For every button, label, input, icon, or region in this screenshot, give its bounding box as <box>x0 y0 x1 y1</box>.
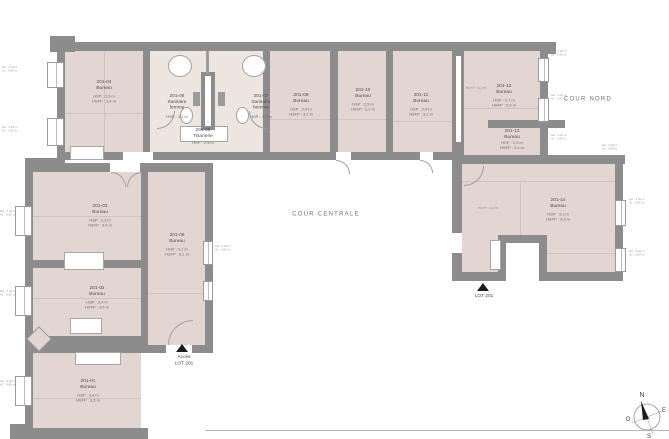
access-label: Accès LOT 201 <box>175 355 194 367</box>
window-dim-tag: HA : 2,20 mAL : 0,95 m <box>215 245 231 252</box>
room-hsfp: HSFP : 3,3 m <box>546 218 570 223</box>
compass: N E S O <box>614 388 669 439</box>
window-dim-tag: HA : 2,20 mAL : 0,95 m <box>629 250 645 257</box>
room-label-201-13: 201-13 Bureau HSP : 2,2 m HSFP : 2,4 m <box>500 129 524 151</box>
wall-segment <box>143 51 150 152</box>
window-dim-tag: HA : 2,20 mAL : 0,95 m <box>551 50 567 57</box>
grid-line <box>148 293 205 294</box>
room-label-201-02: 201-02 Bureau HSP : 3,4 m HSFP : 3,5 m <box>85 286 109 310</box>
window <box>203 241 213 265</box>
fixture-block <box>218 92 225 106</box>
grid-line <box>393 121 452 122</box>
window <box>15 286 32 316</box>
room-hsfp: HSFP : 2,9 m <box>492 104 516 109</box>
room-hsfp: HSFP : 3,1 m <box>351 108 375 113</box>
window <box>15 206 32 236</box>
chimney-box <box>64 252 104 270</box>
room-type: Bureau <box>165 239 189 245</box>
window-dim-tag: HA : 2,20 mAL : 0,95 m <box>551 134 567 141</box>
chimney-box <box>70 146 104 160</box>
room-label-201-09: 201-09 Bureau HSP : 2,9 m HSFP : 3,1 m <box>289 93 313 117</box>
room-type2: femme <box>166 106 188 112</box>
room-hsfp: HSFP : 3,4 m <box>88 224 112 229</box>
window <box>615 248 626 272</box>
room-hsp: HSP : 2,5 m <box>192 141 214 146</box>
door-opening <box>123 152 153 160</box>
room-type: Bureau <box>351 94 375 100</box>
door-opening <box>456 56 461 142</box>
room-hsp: HSP : 3,3 m <box>166 114 188 119</box>
chimney-box <box>75 352 121 365</box>
door-arc <box>336 160 350 174</box>
window-dim-tag: HA : 2,20 mAL : 0,95 m <box>602 144 618 151</box>
room-hsfp: HSFP : 3,4 m <box>92 100 116 105</box>
room-label-201-07: 201-07 Sanitaire homme HSP : 3,3 m <box>250 94 272 119</box>
ground-line <box>205 430 669 431</box>
partition-wall <box>206 51 209 74</box>
room-type: Bureau <box>500 135 524 141</box>
courtyard-notch <box>506 243 539 281</box>
grid-line <box>270 119 330 120</box>
compass-n: N <box>639 392 644 399</box>
room-label-201-12: 201-12 Bureau HSP : 2,7 m HSFP : 2,9 m <box>492 84 516 108</box>
door-arc <box>420 160 433 173</box>
wall-segment <box>141 172 148 348</box>
duct-shaft-slit <box>205 76 211 126</box>
cour-nord-label: COUR NORD <box>564 96 612 102</box>
room-type: Bureau <box>409 99 433 105</box>
grid-line <box>520 181 521 237</box>
window <box>203 281 213 301</box>
room-type: Bureau <box>85 292 109 298</box>
room-hsfp: HSFP : 3,5 m <box>76 399 100 404</box>
room-hsfp: HSFP : 3,1 m <box>409 113 433 118</box>
wall-segment <box>57 42 556 51</box>
door-opening <box>336 152 351 160</box>
room-label-201-01: 201-01 Bureau HSP : 3,4 m HSFP : 3,5 m <box>76 379 100 403</box>
lot-label: LOT 201 <box>475 294 494 300</box>
fixture-block <box>193 92 200 106</box>
room-label-201-03: 201-03 Bureau HSP : 3,3 m HSFP : 3,4 m <box>88 204 112 228</box>
room-fill-201-05 <box>148 172 205 345</box>
cour-centrale-label: COUR CENTRALE <box>292 211 359 217</box>
height-note: HSFP : 3,1 m <box>478 207 498 210</box>
window <box>47 118 64 146</box>
room-type: Bureau <box>92 86 116 92</box>
window-dim-tag: HA : 2,20 mAL : 0,95 m <box>2 66 18 73</box>
compass-o: O <box>626 417 631 423</box>
wall-segment <box>25 428 148 439</box>
wall-segment <box>63 152 455 160</box>
room-hsfp: HSFP : 3,1 m <box>289 113 313 118</box>
room-label-201-06: 201-06 Sanitaire femme HSP : 3,3 m <box>166 94 188 119</box>
wc-fixture <box>168 55 192 77</box>
sink-fixture <box>236 107 249 124</box>
room-hsfp: HSFP : 3,5 m <box>85 306 109 311</box>
wall-segment <box>330 51 338 152</box>
room-label-201-04: 201-04 Bureau HSP : 3,3 m HSFP : 3,4 m <box>92 80 116 104</box>
window-dim-tag: HA : 2,20 mAL : 0,95 m <box>0 210 16 217</box>
room-type: Bureau <box>546 204 570 210</box>
wall-segment <box>386 51 393 152</box>
height-note: HSFP : 3,1 m <box>466 87 486 90</box>
room-label-201-10: 201-10 Bureau HSP : 2,9 m HSFP : 3,1 m <box>351 88 375 112</box>
window <box>47 62 64 88</box>
room-label-201-08: 201-08 Tisanerie HSP : 2,5 m <box>192 128 214 146</box>
room-type2: homme <box>250 106 272 112</box>
compass-e: E <box>662 408 666 414</box>
window-dim-tag: HA : 2,20 mAL : 0,95 m <box>551 94 567 101</box>
room-type: Bureau <box>76 385 100 391</box>
grid-line <box>462 181 615 182</box>
grid-line <box>32 216 141 217</box>
chimney-box <box>70 318 102 334</box>
lot-triangle <box>477 283 489 291</box>
window <box>615 200 626 226</box>
window-dim-tag: HA : 2,20 mAL : 0,95 m <box>0 290 16 297</box>
window-dim-tag: HA : 2,20 mAL : 0,95 m <box>2 126 18 133</box>
room-type: Tisanerie <box>192 134 214 140</box>
wall-segment <box>488 120 565 128</box>
floor-plan: 201-04 Bureau HSP : 3,3 m HSFP : 3,4 m 2… <box>0 0 669 439</box>
window-dim-tag: HA : 2,20 mAL : 0,95 m <box>629 198 645 205</box>
window-dim-tag: HA : 2,20 mAL : 0,95 m <box>0 380 16 387</box>
wall-segment <box>452 272 498 281</box>
room-label-201-11: 201-11 Bureau HSP : 2,9 m HSFP : 3,1 m <box>409 93 433 117</box>
window <box>538 58 549 82</box>
wall-segment <box>498 235 547 243</box>
window <box>538 98 549 122</box>
wall-segment <box>547 272 623 281</box>
room-label-201-14: 201-14 Bureau HSP : 3,1 m HSFP : 3,3 m <box>546 198 570 222</box>
room-hsp: HSP : 3,3 m <box>250 114 272 119</box>
room-type: Bureau <box>289 99 313 105</box>
compass-s: S <box>647 434 651 439</box>
wall-segment <box>10 424 28 439</box>
cabinet-box <box>490 240 501 270</box>
access-triangle <box>176 344 188 352</box>
wall-segment <box>452 164 462 281</box>
window <box>15 376 32 406</box>
door-opening <box>110 163 140 172</box>
wall-segment <box>452 155 625 164</box>
room-type: Bureau <box>88 210 112 216</box>
door-opening <box>452 233 462 253</box>
wc-fixture <box>242 55 266 77</box>
room-type: Bureau <box>492 90 516 96</box>
room-hsfp: HSFP : 2,4 m <box>500 146 524 151</box>
door-opening <box>420 152 433 160</box>
room-hsfp: HSFP : 3,1 m <box>165 253 189 258</box>
grid-line <box>338 119 386 120</box>
room-label-201-05: 201-05 Bureau HSP : 3,1 m HSFP : 3,1 m <box>165 233 189 257</box>
